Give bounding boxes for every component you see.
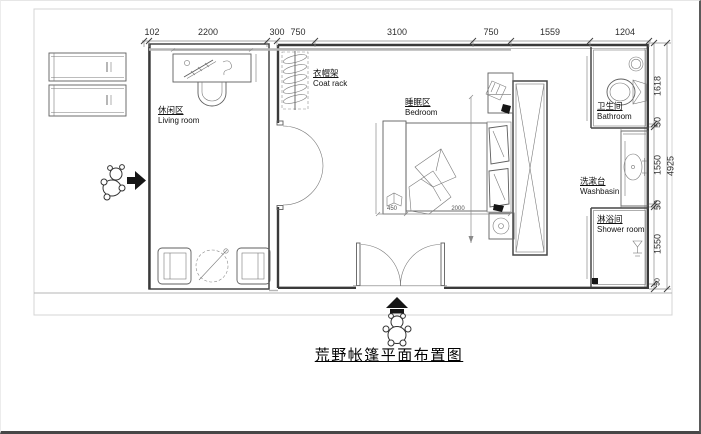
quilt xyxy=(409,149,456,214)
wardrobe xyxy=(513,81,547,255)
bed xyxy=(406,123,487,211)
double-door-bottom xyxy=(353,243,447,286)
double-door-left xyxy=(277,121,323,210)
right-dim-50c: 50 xyxy=(655,278,662,286)
top-dim-750b: 750 xyxy=(483,28,498,37)
living-room-label-zh: 休闲区 xyxy=(158,106,184,115)
lounge-bench-2 xyxy=(49,85,126,116)
washbasin-sink-icon xyxy=(624,154,647,180)
top-dim-2200: 2200 xyxy=(198,28,218,37)
pillows xyxy=(487,122,511,212)
top-dim-1204: 1204 xyxy=(615,28,635,37)
person-entrance-icon xyxy=(101,165,125,200)
living-room-label-en: Living room xyxy=(158,117,199,125)
bed-dimension-line xyxy=(376,95,512,244)
top-dim-102: 102 xyxy=(144,28,159,37)
right-dim-1618: 1618 xyxy=(654,76,663,96)
round-table xyxy=(196,249,228,282)
plan-title: 荒野帐篷平面布置图 xyxy=(315,348,464,363)
coat-rack-label-zh: 衣帽架 xyxy=(313,69,339,78)
right-dim-50a: 50 xyxy=(654,117,663,127)
coat-rack-icon xyxy=(282,51,308,110)
bathroom-label-en: Bathroom xyxy=(597,113,632,121)
toilet-icon xyxy=(607,57,646,105)
bed-dim-2000: 2000 xyxy=(451,206,464,212)
top-dim-300: 300 xyxy=(269,28,284,37)
floor-drain-icon xyxy=(592,278,598,284)
entrance-arrow-icon xyxy=(127,171,146,190)
lounge-bench-1 xyxy=(49,53,126,81)
top-dim-750a: 750 xyxy=(290,28,305,37)
minor-dimension-lines xyxy=(587,56,646,279)
shower-room-label-zh: 淋浴间 xyxy=(597,215,623,224)
main-entrance-arrow-icon xyxy=(386,297,408,314)
desk xyxy=(173,54,251,82)
coat-rack-label-en: Coat rack xyxy=(313,80,347,88)
shower-head-icon xyxy=(633,241,642,256)
desk-chair xyxy=(198,82,226,106)
armchair-right xyxy=(237,248,270,284)
washbasin-label-en: Washbasin xyxy=(580,188,619,196)
right-dim-overall-4925: 4925 xyxy=(667,156,676,176)
right-dim-1550a: 1550 xyxy=(654,155,663,175)
bathroom-label-zh: 卫生间 xyxy=(597,102,623,111)
floor-plan-drawing xyxy=(1,1,701,434)
dressing-stool xyxy=(486,73,513,114)
nightstand-dim-450: 450 xyxy=(387,206,397,212)
right-dim-1550b: 1550 xyxy=(654,234,663,254)
top-dim-3100: 3100 xyxy=(387,28,407,37)
washbasin-label-zh: 洗漱台 xyxy=(580,177,606,186)
nightstand xyxy=(383,121,406,214)
shower-room-label-en: Shower room xyxy=(597,226,645,234)
floor-plan-canvas: 102 2200 300 750 3100 750 1559 1204 1618… xyxy=(0,0,701,434)
top-dim-1559: 1559 xyxy=(540,28,560,37)
drawing-frame xyxy=(34,9,672,315)
bedroom-label-zh: 睡眠区 xyxy=(405,98,431,107)
person-main-entrance-icon xyxy=(383,314,411,346)
bedside-lamp xyxy=(489,204,514,239)
desk-dimension-lines xyxy=(171,49,256,83)
armchair-left xyxy=(158,248,191,284)
bedroom-label-en: Bedroom xyxy=(405,109,437,117)
right-dim-50b: 50 xyxy=(654,200,663,210)
